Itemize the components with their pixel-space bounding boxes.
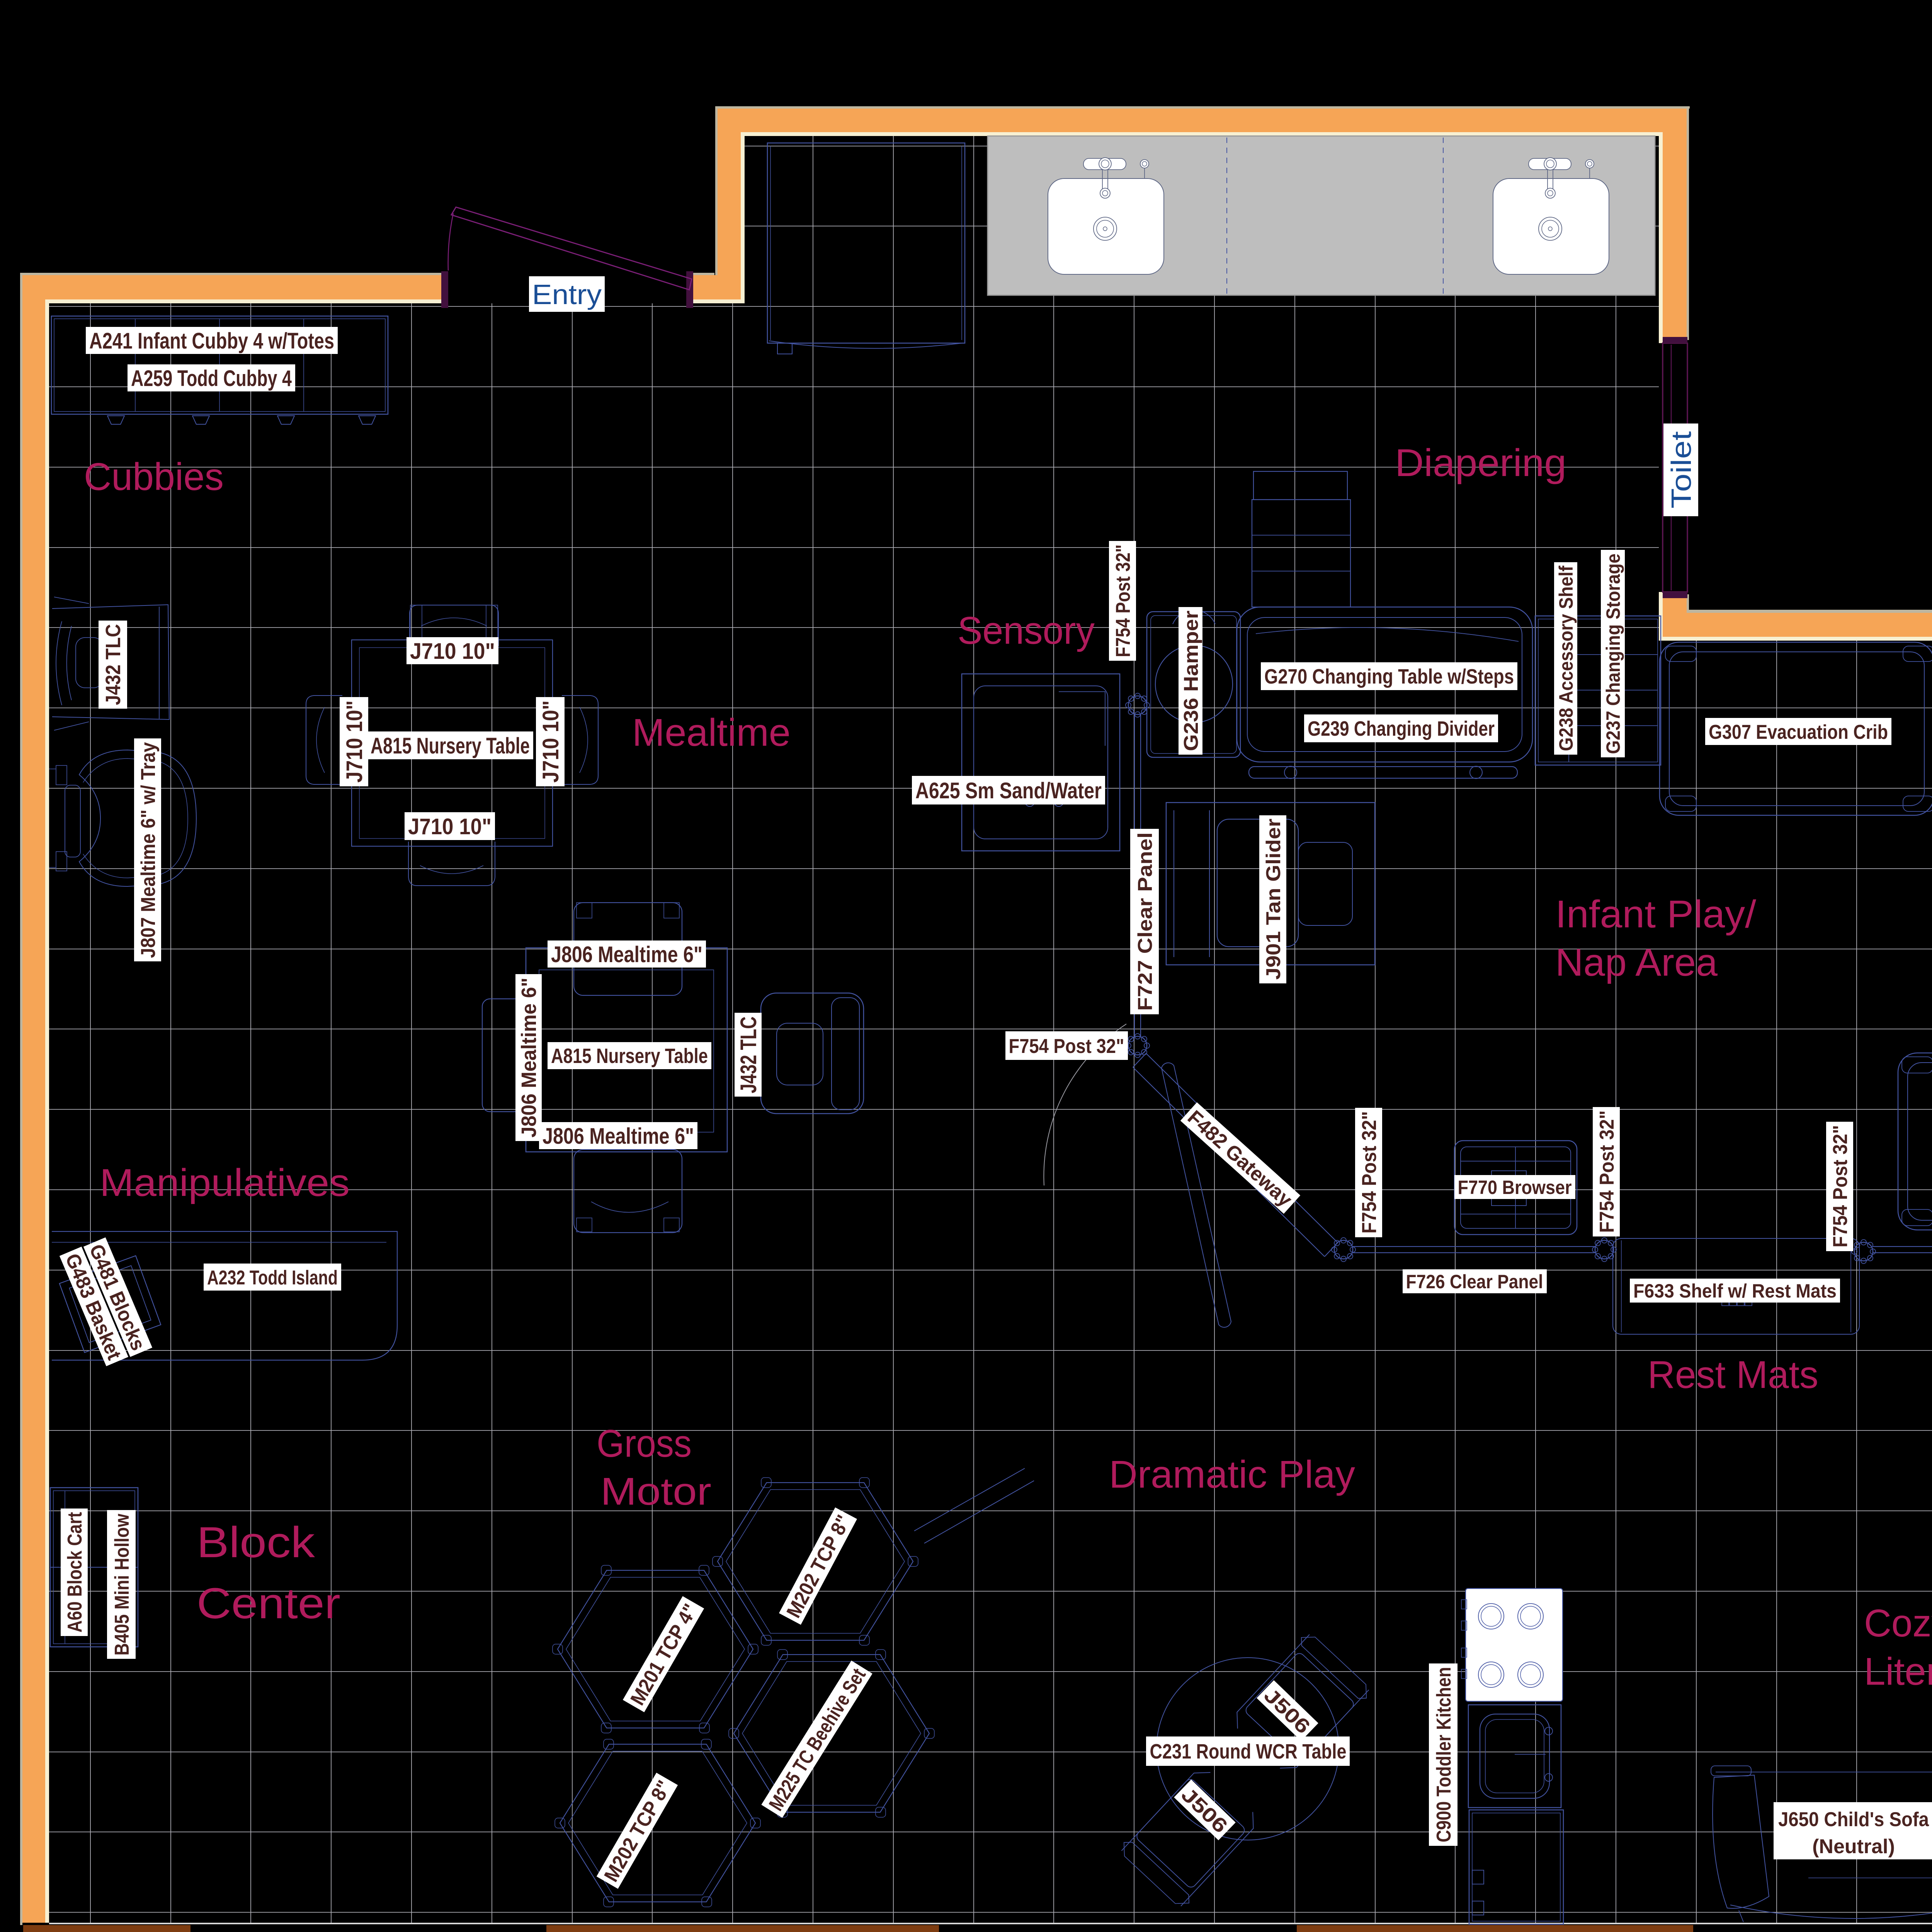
svg-text:J806 Mealtime 6": J806 Mealtime 6" [551, 942, 702, 967]
svg-text:Center: Center [197, 1579, 340, 1628]
svg-text:Cubbies: Cubbies [84, 455, 224, 498]
svg-text:G236 Hamper: G236 Hamper [1180, 611, 1202, 751]
svg-text:F726 Clear Panel: F726 Clear Panel [1406, 1271, 1543, 1293]
svg-text:Rest Mats: Rest Mats [1648, 1353, 1818, 1396]
svg-text:Entry: Entry [532, 279, 602, 310]
svg-text:J806 Mealtime 6": J806 Mealtime 6" [517, 978, 541, 1138]
svg-text:J710 10": J710 10" [408, 814, 492, 839]
svg-text:J650 Child's Sofa: J650 Child's Sofa [1778, 1808, 1929, 1831]
svg-text:Mealtime: Mealtime [632, 711, 791, 754]
svg-text:A625 Sm Sand/Water: A625 Sm Sand/Water [915, 778, 1102, 803]
svg-text:G270 Changing Table w/Steps: G270 Changing Table w/Steps [1264, 665, 1514, 688]
svg-text:G239 Changing Divider: G239 Changing Divider [1308, 717, 1495, 740]
svg-text:Block: Block [197, 1518, 315, 1566]
svg-text:J710 10": J710 10" [538, 701, 563, 783]
svg-text:Infant Play/: Infant Play/ [1555, 893, 1756, 936]
svg-text:F633 Shelf w/ Rest Mats: F633 Shelf w/ Rest Mats [1633, 1280, 1837, 1302]
svg-text:Sensory: Sensory [957, 609, 1095, 652]
svg-text:A815 Nursery Table: A815 Nursery Table [551, 1044, 708, 1068]
svg-text:F727 Clear Panel: F727 Clear Panel [1134, 832, 1156, 1011]
svg-text:Toilet: Toilet [1666, 431, 1697, 509]
svg-text:J807 Mealtime 6" w/ Tray: J807 Mealtime 6" w/ Tray [137, 742, 160, 958]
svg-text:F754 Post 32": F754 Post 32" [1112, 544, 1134, 657]
svg-text:A241 Infant Cubby 4 w/Totes: A241 Infant Cubby 4 w/Totes [89, 328, 334, 354]
svg-text:F770 Browser: F770 Browser [1458, 1177, 1572, 1198]
svg-text:Cozy/: Cozy/ [1864, 1602, 1932, 1645]
svg-text:J432 TLC: J432 TLC [102, 624, 125, 705]
svg-text:J710 10": J710 10" [410, 639, 495, 664]
svg-text:G237 Changing Storage: G237 Changing Storage [1602, 554, 1624, 754]
svg-text:Diapering: Diapering [1395, 441, 1566, 485]
svg-text:A259 Todd Cubby 4: A259 Todd Cubby 4 [131, 366, 292, 391]
svg-text:F754 Post 32": F754 Post 32" [1009, 1035, 1124, 1058]
svg-text:G238 Accessory Shelf: G238 Accessory Shelf [1555, 566, 1577, 751]
svg-text:J710 10": J710 10" [342, 701, 367, 783]
svg-text:F754 Post 32": F754 Post 32" [1829, 1125, 1852, 1248]
svg-text:(Neutral): (Neutral) [1812, 1835, 1895, 1858]
svg-text:A60 Block Cart: A60 Block Cart [64, 1512, 86, 1633]
svg-text:Literacy: Literacy [1864, 1650, 1932, 1693]
svg-text:C900 Toddler Kitchen: C900 Toddler Kitchen [1433, 1667, 1455, 1842]
svg-text:G307 Evacuation Crib: G307 Evacuation Crib [1709, 721, 1888, 743]
svg-text:A815 Nursery Table: A815 Nursery Table [371, 733, 530, 759]
svg-text:Nap Area: Nap Area [1555, 941, 1718, 984]
svg-text:J806 Mealtime 6": J806 Mealtime 6" [543, 1124, 694, 1149]
svg-text:Manipulatives: Manipulatives [100, 1161, 350, 1204]
svg-text:F754 Post 32": F754 Post 32" [1596, 1111, 1618, 1233]
svg-text:Motor: Motor [600, 1470, 711, 1513]
svg-text:Gross: Gross [597, 1422, 692, 1465]
svg-text:Dramatic Play: Dramatic Play [1109, 1453, 1355, 1496]
svg-text:J901 Tan Glider: J901 Tan Glider [1262, 819, 1285, 980]
svg-text:C231 Round WCR Table: C231 Round WCR Table [1150, 1740, 1347, 1763]
svg-text:F754 Post 32": F754 Post 32" [1358, 1111, 1381, 1234]
svg-text:A232 Todd Island: A232 Todd Island [207, 1267, 338, 1289]
svg-text:B405 Mini Hollow: B405 Mini Hollow [111, 1514, 133, 1655]
svg-text:J432 TLC: J432 TLC [736, 1017, 761, 1094]
